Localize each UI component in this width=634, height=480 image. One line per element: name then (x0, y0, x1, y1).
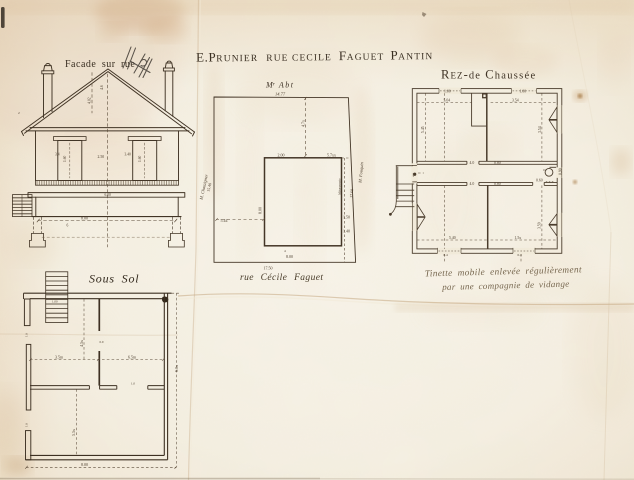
svg-text:8.00: 8.00 (81, 462, 88, 467)
svg-text:1.00: 1.00 (52, 300, 58, 304)
svg-text:MrAbt: MrAbt (265, 81, 294, 90)
svg-text:6: 6 (67, 224, 69, 228)
svg-text:3.40: 3.40 (125, 153, 131, 157)
svg-text:rue Cécile Faguet: rue Cécile Faguet (240, 273, 323, 283)
svg-text:6.5m: 6.5m (128, 354, 137, 359)
svg-text:1.00: 1.00 (444, 89, 451, 93)
svg-text:5.40: 5.40 (449, 236, 456, 240)
svg-text:4.7x: 4.7x (301, 120, 306, 127)
svg-text:1.0: 1.0 (25, 333, 29, 337)
svg-text:6.0x: 6.0x (174, 365, 179, 372)
svg-text:3.59: 3.59 (538, 222, 542, 229)
svg-text:REZ-de Chaussée: REZ-de Chaussée (441, 68, 536, 82)
svg-text:4.6: 4.6 (100, 85, 104, 90)
svg-text:1.40: 1.40 (343, 229, 350, 234)
svg-text:4.0: 4.0 (412, 173, 416, 177)
svg-text:6.00: 6.00 (105, 193, 111, 197)
svg-text:4.5x: 4.5x (79, 340, 84, 347)
svg-text:1.0: 1.0 (25, 423, 29, 427)
svg-text:2.50: 2.50 (98, 155, 105, 159)
svg-text:2.00: 2.00 (278, 152, 285, 157)
svg-text:0.80: 0.80 (494, 161, 501, 165)
svg-text:3.5m: 3.5m (55, 354, 64, 359)
svg-text:3.54: 3.54 (512, 99, 519, 103)
svg-text:Sous Sol: Sous Sol (89, 272, 139, 286)
svg-text:5.45: 5.45 (421, 126, 425, 133)
svg-text:0.4: 0.4 (444, 253, 449, 257)
svg-text:17.50: 17.50 (264, 266, 273, 271)
svg-text:0.4: 0.4 (518, 253, 523, 257)
svg-text:3.4: 3.4 (55, 153, 60, 157)
svg-text:8.00: 8.00 (286, 254, 293, 259)
svg-text:4.02: 4.02 (88, 97, 92, 104)
svg-text:Mitoyennete: Mitoyennete (337, 178, 341, 196)
svg-text:1.60: 1.60 (63, 156, 67, 162)
svg-text:0.80: 0.80 (494, 182, 501, 186)
svg-text:0.7: 0.7 (543, 168, 547, 172)
svg-text:0.90: 0.90 (559, 168, 563, 175)
svg-text:5.04: 5.04 (444, 99, 451, 103)
svg-text:4.0: 4.0 (470, 161, 475, 165)
svg-text:1.60: 1.60 (138, 156, 142, 162)
svg-text:1.50: 1.50 (343, 215, 350, 220)
svg-text:5.5x: 5.5x (71, 429, 76, 436)
svg-text:8.00: 8.00 (81, 216, 88, 221)
svg-text:2: 2 (18, 111, 20, 115)
svg-text:1.5x: 1.5x (515, 236, 522, 240)
svg-text:4.0: 4.0 (470, 182, 475, 186)
svg-text:0.60: 0.60 (536, 178, 543, 182)
svg-text:8.00: 8.00 (258, 207, 263, 214)
svg-text:4: 4 (284, 249, 286, 253)
svg-text:0.9: 0.9 (100, 340, 104, 344)
svg-text:17.60: 17.60 (349, 189, 355, 198)
svg-text:1.00: 1.00 (520, 89, 527, 93)
svg-text:5.7xx: 5.7xx (327, 152, 336, 157)
svg-text:14.77: 14.77 (275, 92, 286, 97)
svg-text:5.44: 5.44 (221, 218, 228, 223)
svg-text:1.0: 1.0 (131, 382, 135, 386)
svg-text:3.54: 3.54 (538, 126, 542, 133)
